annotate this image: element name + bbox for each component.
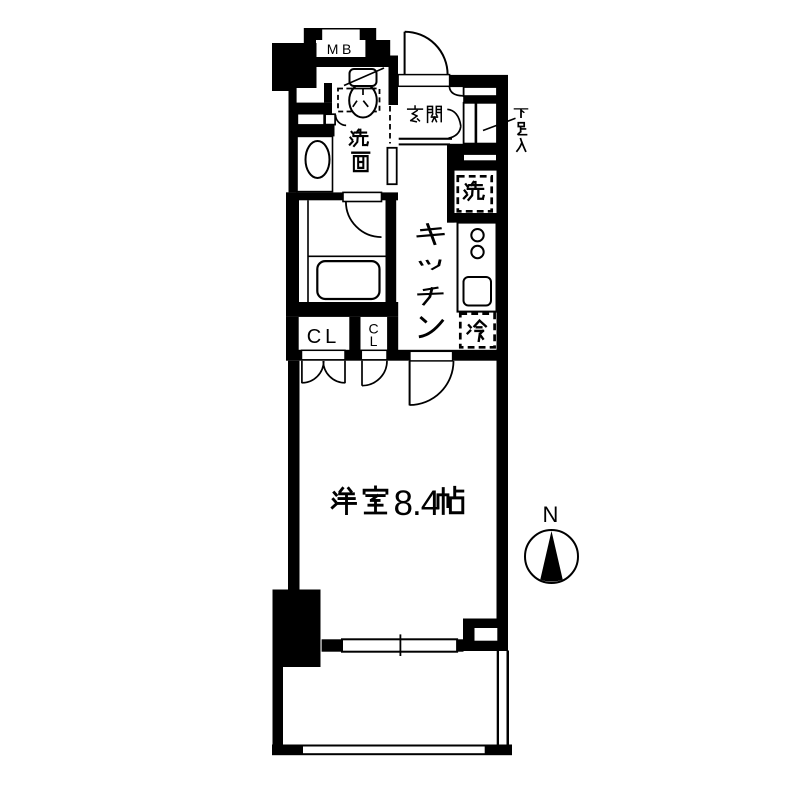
svg-text:CL: CL <box>307 326 341 348</box>
svg-text:N: N <box>543 502 559 527</box>
svg-text:8.4: 8.4 <box>394 484 440 523</box>
svg-text:MB: MB <box>327 41 355 57</box>
svg-text:L: L <box>370 333 378 349</box>
